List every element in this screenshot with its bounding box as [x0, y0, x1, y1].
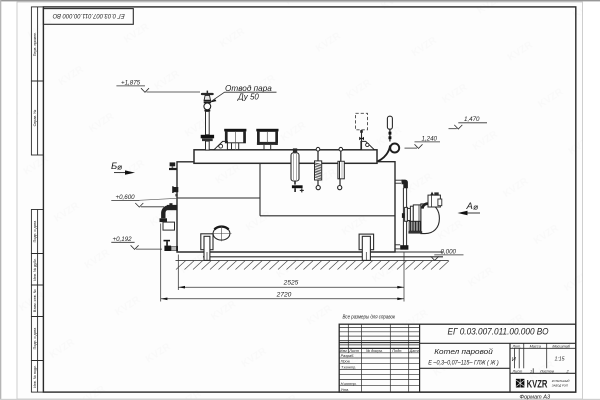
- svg-text:0,000: 0,000: [441, 248, 457, 255]
- svg-text:ЕГ 0.03.007.011.00.000 ВО: ЕГ 0.03.007.011.00.000 ВО: [53, 12, 125, 19]
- svg-text:1,240: 1,240: [422, 135, 438, 142]
- svg-text:Подп. и дата: Подп. и дата: [33, 327, 37, 350]
- svg-text:2720: 2720: [276, 292, 292, 299]
- svg-text:ЗАВОД РЭП: ЗАВОД РЭП: [552, 383, 569, 387]
- svg-text:Подп.: Подп.: [392, 349, 402, 353]
- svg-text:Лист: Лист: [512, 370, 523, 374]
- svg-text:Утв.: Утв.: [341, 388, 350, 392]
- svg-text:Н.контр.: Н.контр.: [341, 382, 357, 386]
- svg-text:Подп. и дата: Подп. и дата: [33, 220, 37, 243]
- svg-text:Перв. примен.: Перв. примен.: [33, 32, 37, 57]
- svg-text:+0,600: +0,600: [116, 194, 136, 201]
- svg-text:Все размеры для справок: Все размеры для справок: [343, 315, 396, 321]
- svg-text:1,470: 1,470: [464, 116, 480, 123]
- svg-text:+0,192: +0,192: [113, 236, 133, 243]
- svg-text:Изм: Изм: [340, 349, 347, 353]
- svg-text:+1,875: +1,875: [121, 79, 141, 86]
- svg-text:Котел паровой: Котел паровой: [434, 348, 493, 356]
- svg-text:Масштаб: Масштаб: [552, 345, 571, 349]
- svg-text:Разраб.: Разраб.: [341, 354, 355, 358]
- svg-text:1: 1: [530, 370, 532, 374]
- svg-text:Б: Б: [111, 161, 117, 172]
- svg-text:Отвод пара: Отвод пара: [225, 84, 272, 93]
- svg-text:Лит.: Лит.: [511, 345, 521, 349]
- svg-text:Масса: Масса: [530, 345, 541, 349]
- svg-text:ЕГ 0.03.007.011.00.000 ВО: ЕГ 0.03.007.011.00.000 ВО: [448, 325, 550, 336]
- svg-text:2525: 2525: [283, 279, 299, 286]
- svg-text:Инв. № дубл.: Инв. № дубл.: [33, 258, 37, 281]
- svg-text:Справ. №: Справ. №: [33, 110, 37, 127]
- svg-text:Листов: Листов: [539, 370, 554, 374]
- svg-text:KVZR: KVZR: [527, 379, 548, 391]
- svg-text:Дата: Дата: [409, 349, 420, 353]
- svg-text:Пров.: Пров.: [341, 360, 351, 364]
- svg-text:№ докум.: № докум.: [366, 349, 383, 353]
- svg-text:Инв. № подл.: Инв. № подл.: [33, 365, 37, 388]
- svg-text:А: А: [466, 201, 473, 212]
- svg-text:И: И: [512, 357, 516, 363]
- svg-text:Ду 50: Ду 50: [237, 93, 259, 102]
- svg-text:Формат А3: Формат А3: [520, 395, 551, 400]
- svg-text:Т.контр.: Т.контр.: [341, 366, 356, 370]
- svg-text:Лист: Лист: [348, 349, 359, 353]
- svg-text:Е –0,3–0,07–115– ГЛЖ ( Ж ): Е –0,3–0,07–115– ГЛЖ ( Ж ): [428, 359, 499, 366]
- svg-text:Взам. инв. №: Взам. инв. №: [33, 289, 37, 312]
- svg-text:1:15: 1:15: [554, 356, 564, 362]
